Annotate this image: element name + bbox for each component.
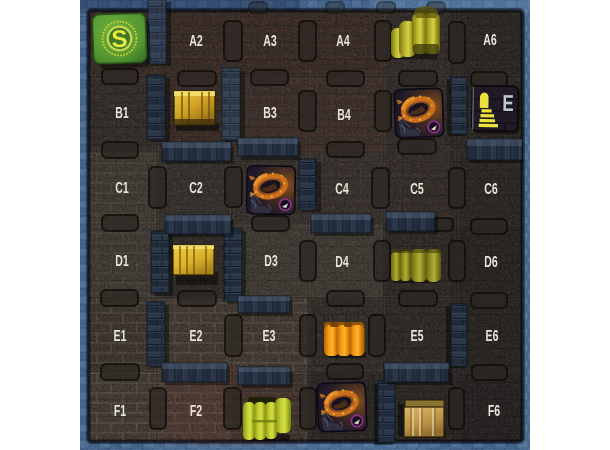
svg-text:B1: B1 — [115, 104, 128, 122]
svg-text:B3: B3 — [263, 104, 276, 122]
svg-text:A4: A4 — [336, 32, 350, 50]
svg-text:C5: C5 — [410, 180, 423, 198]
svg-text:E3: E3 — [263, 327, 276, 345]
svg-text:E6: E6 — [486, 327, 499, 345]
svg-text:D6: D6 — [484, 253, 497, 271]
svg-text:C6: C6 — [484, 180, 497, 198]
svg-text:E: E — [502, 92, 514, 117]
svg-text:F2: F2 — [190, 402, 202, 420]
svg-text:A3: A3 — [263, 32, 276, 50]
svg-text:F6: F6 — [488, 402, 500, 420]
svg-text:D1: D1 — [115, 252, 128, 270]
svg-text:D3: D3 — [264, 252, 277, 270]
svg-text:E5: E5 — [411, 327, 424, 345]
svg-text:A2: A2 — [189, 32, 202, 50]
svg-text:E2: E2 — [190, 327, 203, 345]
svg-text:C1: C1 — [115, 179, 128, 197]
svg-text:F1: F1 — [114, 402, 126, 420]
svg-text:B4: B4 — [337, 106, 351, 124]
svg-text:S: S — [111, 26, 128, 54]
svg-text:E1: E1 — [114, 327, 127, 345]
svg-text:D4: D4 — [335, 253, 349, 271]
svg-text:C4: C4 — [335, 180, 349, 198]
svg-text:C2: C2 — [189, 179, 202, 197]
svg-text:A6: A6 — [483, 31, 496, 49]
